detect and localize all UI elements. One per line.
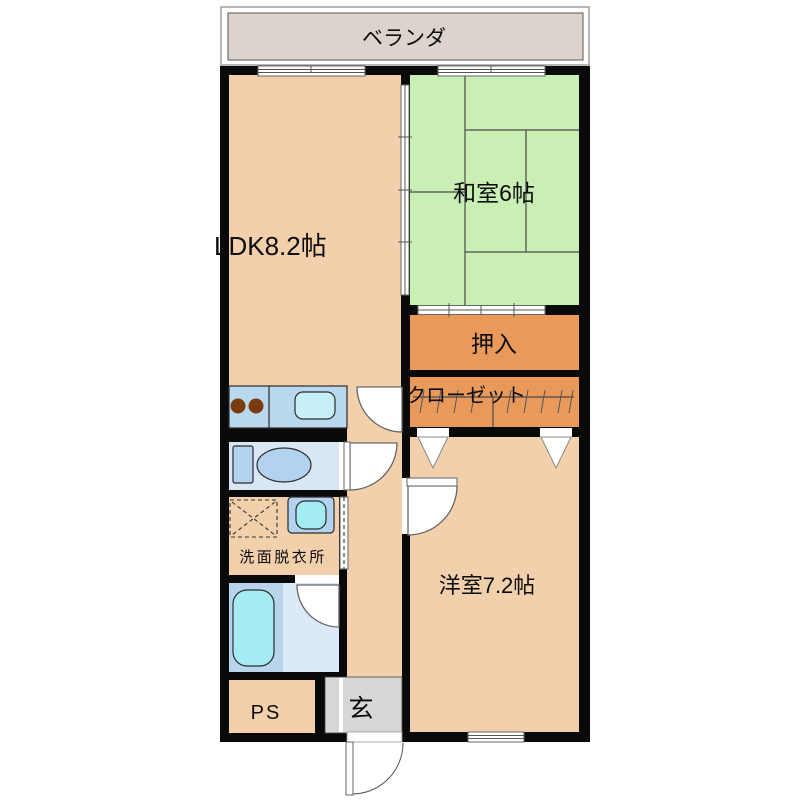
veranda-area: ベランダ [221, 7, 589, 65]
washroom-label: 洗面脱衣所 [239, 549, 327, 566]
washroom-sliding-door [340, 497, 348, 569]
closet-opening-right [540, 428, 572, 437]
washbasin-icon [288, 497, 334, 533]
ps-label: PS [251, 702, 282, 724]
oshiire-label: 押入 [471, 331, 517, 357]
floorplan-canvas: ベランダ [0, 0, 800, 800]
closet-label: クローゼット [406, 384, 526, 407]
yoshitsu-window [468, 732, 524, 742]
yoshitsu-label: 洋室7.2帖 [439, 573, 536, 598]
stove-burner-icon [249, 399, 264, 414]
veranda-label: ベランダ [362, 27, 446, 50]
washitsu-label: 和室6帖 [453, 180, 535, 206]
toilet-icon [233, 446, 311, 483]
kitchen-sink-icon [295, 392, 335, 419]
washitsu-window [438, 66, 545, 76]
floorplan-drawing: ベランダ [0, 0, 800, 800]
bathtub-icon [233, 590, 274, 666]
genkan-label: 玄 [348, 695, 373, 723]
ldk-label: LDK8.2帖 [214, 231, 327, 261]
fusuma-oshiire [418, 303, 545, 317]
ldk-window [258, 66, 365, 76]
stove-burner-icon [231, 399, 246, 414]
kitchen-counter [229, 386, 347, 428]
closet-opening-left [417, 428, 449, 437]
